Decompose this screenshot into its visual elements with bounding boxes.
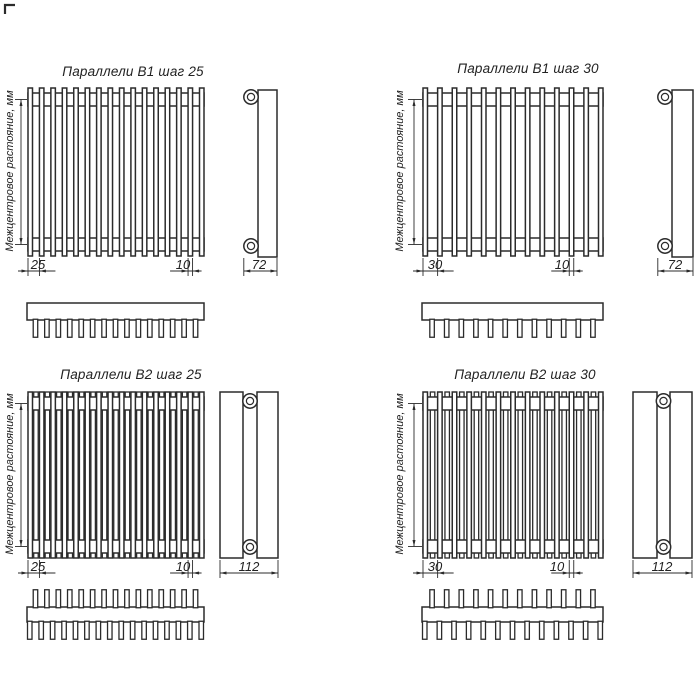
quadrant-title-b1-30: Параллели В1 шаг 30 <box>457 61 599 76</box>
dim-label-tube-width: 10 <box>176 257 190 272</box>
dim-label-tube-width: 10 <box>550 559 564 574</box>
dim-label-depth: 112 <box>239 559 260 574</box>
dim-label-tube-width: 10 <box>176 559 190 574</box>
dim-label-depth: 112 <box>652 559 673 574</box>
side-view <box>658 90 693 257</box>
quadrant-title-b1-25: Параллели В1 шаг 25 <box>62 64 204 79</box>
dim-label-tube-width: 10 <box>555 257 569 272</box>
dim-label-depth: 72 <box>668 257 682 272</box>
top-view <box>422 590 603 640</box>
top-view <box>27 303 204 337</box>
front-view <box>423 392 603 558</box>
vertical-axis-label: Межцентровое растояние, мм <box>4 86 16 256</box>
technical-drawing-sheet: Параллели В1 шаг 25 Параллели В1 шаг 30 … <box>0 0 700 700</box>
front-view <box>28 392 204 558</box>
quadrant-title-b2-30: Параллели В2 шаг 30 <box>454 367 596 382</box>
quadrant-title-b2-25: Параллели В2 шаг 25 <box>60 367 202 382</box>
dim-label-pitch: 30 <box>428 559 442 574</box>
top-view <box>27 590 204 640</box>
vertical-axis-label: Межцентровое растояние, мм <box>394 389 406 559</box>
side-view <box>633 392 692 558</box>
dim-label-pitch: 25 <box>31 559 45 574</box>
dim-label-pitch: 30 <box>428 257 442 272</box>
front-view <box>28 88 204 256</box>
radiator-diagram <box>0 0 700 700</box>
front-view <box>423 88 603 256</box>
vertical-axis-label: Межцентровое растояние, мм <box>394 86 406 256</box>
dim-label-pitch: 25 <box>31 257 45 272</box>
vertical-axis-label: Межцентровое растояние, мм <box>4 389 16 559</box>
dim-label-depth: 72 <box>252 257 266 272</box>
side-view <box>220 392 278 558</box>
top-view <box>422 303 603 337</box>
side-view <box>244 90 277 257</box>
